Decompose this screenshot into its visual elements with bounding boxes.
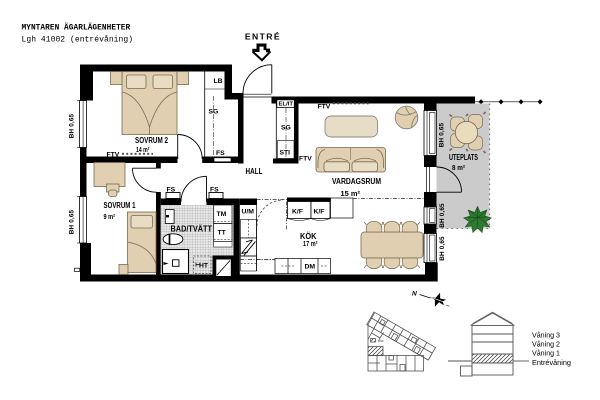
svg-text:VARDAGSRUM: VARDAGSRUM [332, 177, 381, 186]
svg-text:UTEPLATS: UTEPLATS [449, 153, 478, 162]
svg-text:FS: FS [216, 150, 225, 157]
svg-text:Våning 1: Våning 1 [532, 350, 560, 358]
svg-text:BH 0,65: BH 0,65 [69, 209, 76, 234]
svg-text:U/M: U/M [242, 209, 255, 216]
svg-text:15 m²: 15 m² [341, 191, 361, 198]
svg-text:K/F: K/F [314, 209, 325, 216]
svg-text:HALL: HALL [246, 167, 263, 176]
svg-text:BH 0,65: BH 0,65 [439, 203, 446, 228]
svg-text:BH 0,65: BH 0,65 [439, 122, 446, 147]
svg-text:KÖK: KÖK [300, 232, 317, 241]
svg-text:FTV: FTV [318, 104, 331, 111]
svg-text:14 m²: 14 m² [136, 147, 150, 154]
svg-text:SOVRUM 1: SOVRUM 1 [104, 201, 136, 210]
svg-text:Entrévåning: Entrévåning [532, 359, 571, 367]
svg-text:BH 0,65: BH 0,65 [69, 113, 76, 138]
svg-text:FTV: FTV [299, 156, 312, 163]
svg-text:TT: TT [218, 230, 227, 237]
svg-text:Lgh 41002 (entrévåning): Lgh 41002 (entrévåning) [22, 36, 134, 45]
svg-text:LB: LB [214, 78, 223, 85]
svg-text:Våning 2: Våning 2 [532, 341, 560, 349]
svg-text:FTV: FTV [107, 152, 120, 159]
svg-text:9 m²: 9 m² [104, 214, 116, 221]
svg-text:MYNTAREN ÄGARLÄGENHETER: MYNTAREN ÄGARLÄGENHETER [22, 24, 131, 33]
svg-text:BAD/TVÄTT: BAD/TVÄTT [171, 224, 213, 233]
svg-text:DM: DM [305, 264, 316, 271]
svg-text:TM: TM [217, 211, 227, 218]
svg-text:SOVRUM 2: SOVRUM 2 [135, 136, 168, 145]
svg-text:HT: HT [199, 263, 209, 270]
svg-text:K/F: K/F [292, 209, 303, 216]
svg-text:ENTRÉ: ENTRÉ [245, 32, 281, 42]
svg-text:SG: SG [281, 125, 291, 132]
svg-text:Våning 3: Våning 3 [532, 332, 560, 340]
svg-text:SG: SG [209, 109, 219, 116]
svg-text:8 m²: 8 m² [452, 165, 466, 172]
svg-text:EL/IT: EL/IT [279, 102, 294, 108]
svg-text:FS: FS [167, 187, 176, 194]
svg-text:FS: FS [210, 187, 219, 194]
svg-text:17 m²: 17 m² [303, 241, 318, 248]
svg-text:N: N [412, 291, 417, 298]
svg-text:BH 0,65: BH 0,65 [439, 236, 446, 261]
svg-text:STI: STI [280, 150, 291, 157]
